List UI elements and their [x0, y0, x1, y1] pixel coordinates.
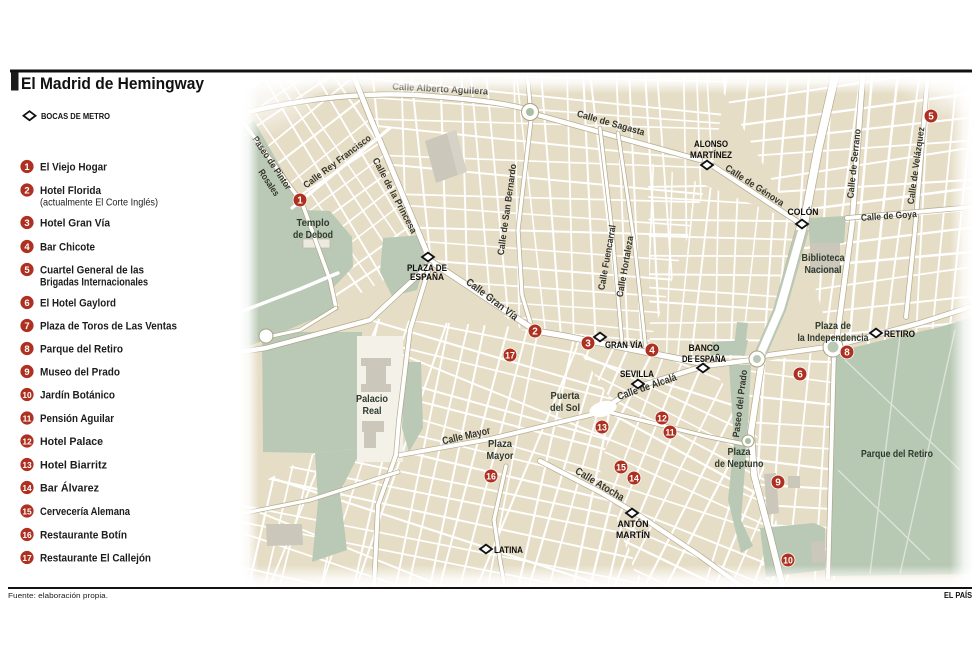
svg-text:11: 11: [665, 427, 674, 437]
svg-text:17: 17: [22, 553, 32, 563]
svg-text:de Debod: de Debod: [293, 230, 333, 241]
svg-text:4: 4: [24, 242, 30, 253]
svg-text:3: 3: [24, 218, 29, 229]
svg-text:Real: Real: [363, 406, 382, 417]
svg-text:13: 13: [597, 422, 607, 432]
svg-text:4: 4: [649, 345, 655, 356]
svg-text:16: 16: [22, 530, 32, 540]
svg-text:Nacional: Nacional: [805, 265, 842, 276]
svg-text:6: 6: [24, 298, 29, 309]
svg-text:Palacio: Palacio: [356, 394, 388, 405]
svg-text:El Viejo Hogar: El Viejo Hogar: [40, 162, 108, 174]
svg-text:COLÓN: COLÓN: [788, 206, 819, 218]
svg-text:9: 9: [775, 477, 781, 488]
svg-text:8: 8: [844, 347, 850, 358]
svg-text:17: 17: [505, 350, 515, 360]
svg-text:3: 3: [585, 338, 591, 349]
svg-text:2: 2: [532, 326, 538, 337]
svg-text:El Madrid de Hemingway: El Madrid de Hemingway: [21, 75, 205, 93]
svg-text:12: 12: [657, 413, 667, 423]
svg-text:Puerta: Puerta: [551, 391, 580, 402]
svg-text:Parque del Retiro: Parque del Retiro: [861, 449, 933, 460]
svg-text:Restaurante El Callejón: Restaurante El Callejón: [40, 553, 151, 565]
svg-text:LATINA: LATINA: [494, 545, 523, 556]
svg-text:SEVILLA: SEVILLA: [620, 369, 654, 380]
svg-text:13: 13: [22, 460, 32, 470]
svg-text:Mayor: Mayor: [487, 451, 514, 462]
svg-text:Pensión Aguilar: Pensión Aguilar: [40, 413, 115, 425]
svg-text:10: 10: [22, 390, 32, 400]
svg-text:Parque del Retiro: Parque del Retiro: [40, 344, 123, 356]
svg-text:GRAN VÍA: GRAN VÍA: [605, 340, 643, 351]
svg-text:El Hotel Gaylord: El Hotel Gaylord: [40, 298, 116, 310]
svg-text:RETIRO: RETIRO: [884, 329, 915, 340]
svg-text:Plaza de: Plaza de: [815, 321, 851, 332]
svg-text:ANTÓN: ANTÓN: [618, 518, 649, 530]
svg-text:9: 9: [24, 367, 29, 378]
svg-text:Bar Chicote: Bar Chicote: [40, 242, 95, 254]
svg-text:1: 1: [297, 195, 303, 206]
svg-text:Hotel Gran Vía: Hotel Gran Vía: [40, 218, 111, 230]
svg-text:Plaza: Plaza: [488, 439, 512, 450]
svg-text:Jardín Botánico: Jardín Botánico: [40, 390, 115, 402]
svg-text:5: 5: [928, 111, 934, 122]
svg-text:Brigadas Internacionales: Brigadas Internacionales: [40, 277, 148, 289]
svg-text:12: 12: [22, 436, 32, 446]
svg-text:16: 16: [486, 471, 496, 481]
svg-text:Cervecería Alemana: Cervecería Alemana: [40, 506, 131, 518]
svg-text:Hotel Florida: Hotel Florida: [40, 185, 102, 197]
svg-text:BANCO: BANCO: [689, 343, 720, 354]
svg-text:BOCAS DE METRO: BOCAS DE METRO: [41, 111, 110, 121]
svg-text:Fuente: elaboración propia.: Fuente: elaboración propia.: [8, 591, 108, 600]
svg-text:14: 14: [629, 473, 639, 483]
svg-text:ESPAÑA: ESPAÑA: [410, 272, 444, 283]
svg-text:ALONSO: ALONSO: [694, 139, 728, 150]
svg-text:Plaza de Toros de Las Ventas: Plaza de Toros de Las Ventas: [40, 321, 177, 333]
svg-text:Hotel Biarritz: Hotel Biarritz: [40, 460, 107, 472]
svg-text:MARTÍN: MARTÍN: [616, 530, 650, 541]
svg-text:15: 15: [22, 506, 32, 516]
svg-text:7: 7: [24, 321, 29, 332]
svg-text:Plaza: Plaza: [728, 447, 751, 458]
svg-text:11: 11: [23, 413, 32, 423]
svg-text:EL PAÍS: EL PAÍS: [944, 590, 972, 600]
svg-text:(actualmente El Corte Inglés): (actualmente El Corte Inglés): [40, 198, 158, 209]
svg-text:MARTÍNEZ: MARTÍNEZ: [690, 150, 732, 161]
svg-text:1: 1: [24, 162, 30, 173]
svg-text:Bar Álvarez: Bar Álvarez: [40, 482, 99, 495]
svg-text:14: 14: [22, 483, 32, 493]
svg-text:Museo del Prado: Museo del Prado: [40, 367, 120, 379]
svg-text:del Sol: del Sol: [550, 403, 580, 414]
svg-text:2: 2: [24, 185, 29, 196]
svg-text:la Independencia: la Independencia: [798, 333, 869, 344]
svg-text:15: 15: [616, 462, 626, 472]
svg-text:Templo: Templo: [297, 218, 330, 229]
svg-text:Biblioteca: Biblioteca: [802, 253, 845, 264]
svg-text:8: 8: [24, 344, 29, 355]
svg-text:Restaurante Botín: Restaurante Botín: [40, 530, 127, 542]
svg-text:10: 10: [783, 555, 793, 565]
svg-text:Hotel Palace: Hotel Palace: [40, 436, 103, 448]
svg-text:5: 5: [24, 265, 30, 276]
svg-text:de Neptuno: de Neptuno: [715, 459, 764, 470]
svg-text:Cuartel General de las: Cuartel General de las: [40, 265, 144, 277]
svg-text:6: 6: [797, 369, 803, 380]
